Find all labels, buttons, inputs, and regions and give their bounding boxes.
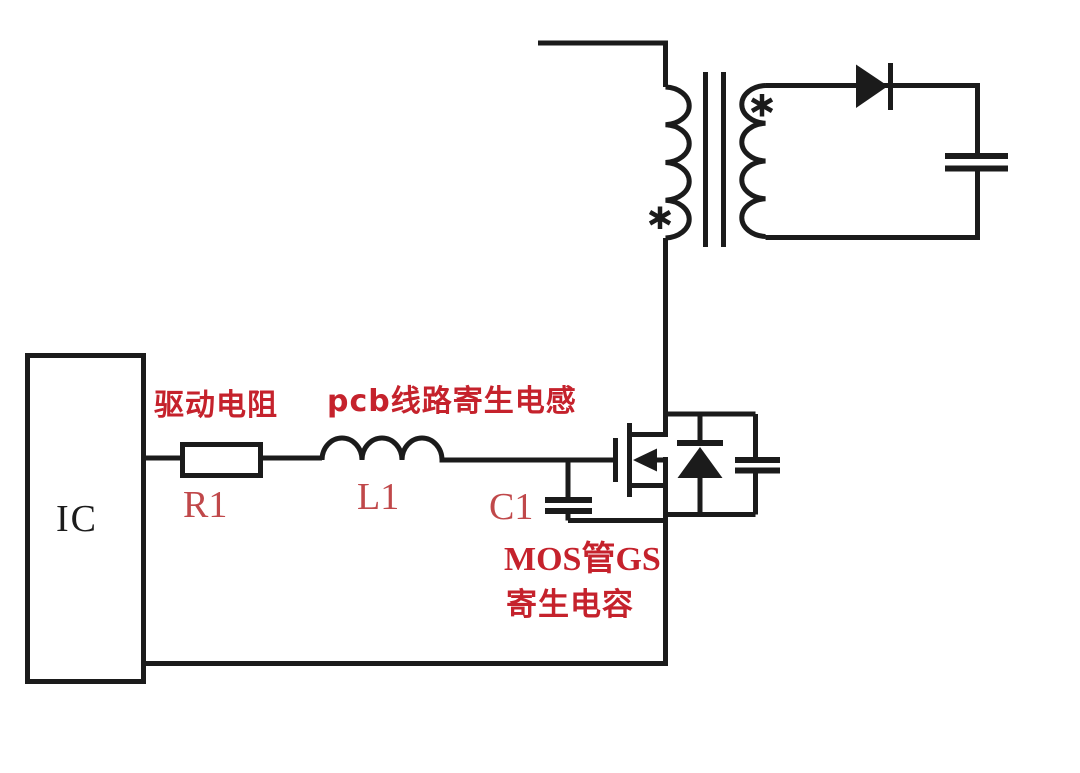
- transformer-symbol: [650, 72, 772, 247]
- schematic-canvas: IC 驱动电阻 pcb线路寄生电感 R1 L1 C1 MOS管GS 寄生电容: [0, 0, 1080, 773]
- mosfet-symbol: [616, 423, 667, 497]
- polarity-mark-primary-icon: [650, 207, 670, 230]
- output-capacitor-symbol: [945, 156, 1008, 169]
- capacitor-c1-ref: C1: [489, 488, 533, 526]
- resistor-r1-ref: R1: [183, 486, 227, 524]
- wire-secondary-bottom: [766, 171, 978, 238]
- inductor-l1-symbol: [322, 438, 616, 460]
- resistor-r1-symbol: [183, 445, 261, 476]
- mos-gs-annotation-line1: MOS管GS: [504, 543, 661, 577]
- ic-label: IC: [56, 500, 98, 538]
- inductor-l1-ref: L1: [357, 478, 399, 516]
- drive-resistor-annotation: 驱动电阻: [154, 391, 278, 421]
- output-diode-symbol: [856, 63, 891, 110]
- clamp-network: [666, 414, 781, 515]
- capacitor-c1-symbol: [545, 460, 666, 521]
- mos-gs-annotation-line2: 寄生电容: [506, 590, 634, 621]
- wire-supply-to-primary: [538, 43, 666, 87]
- body-diode-symbol: [677, 414, 723, 515]
- snubber-capacitor-symbol: [735, 414, 780, 515]
- pcb-inductance-annotation: pcb线路寄生电感: [327, 387, 577, 417]
- polarity-mark-secondary-icon: [752, 94, 772, 117]
- mosfet-arrow-icon: [633, 449, 657, 472]
- primary-winding: [666, 87, 690, 238]
